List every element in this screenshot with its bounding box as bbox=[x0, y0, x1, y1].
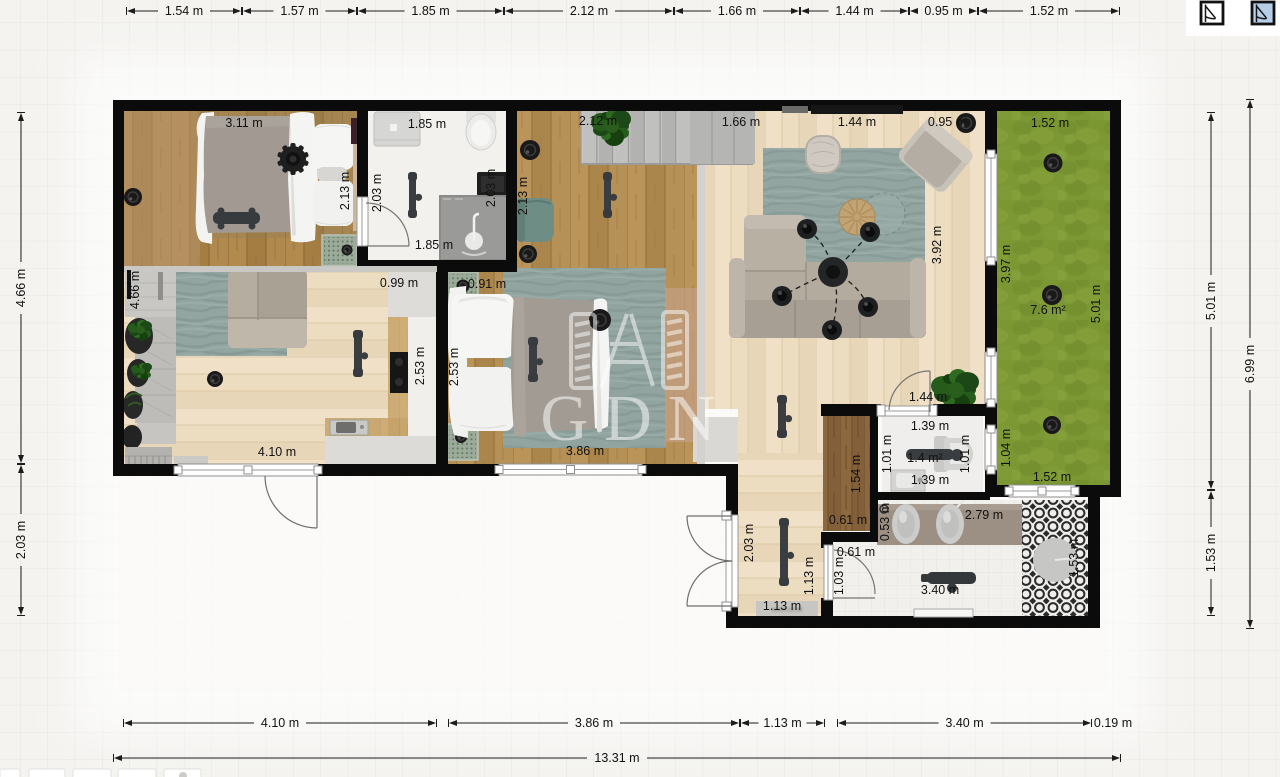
svg-text:3.11 m: 3.11 m bbox=[225, 116, 262, 130]
svg-text:7.6 m²: 7.6 m² bbox=[1030, 303, 1065, 317]
svg-text:0.95 m: 0.95 m bbox=[928, 115, 966, 129]
svg-text:3.92 m: 3.92 m bbox=[930, 226, 944, 264]
svg-text:1.13 m: 1.13 m bbox=[763, 599, 801, 613]
svg-text:1.03 m: 1.03 m bbox=[832, 557, 846, 595]
svg-text:1.04 m: 1.04 m bbox=[999, 429, 1013, 467]
svg-text:2.03 m: 2.03 m bbox=[370, 174, 384, 212]
svg-text:1.85 m: 1.85 m bbox=[415, 238, 453, 252]
svg-text:1.44 m: 1.44 m bbox=[838, 115, 876, 129]
svg-text:2.12 m: 2.12 m bbox=[570, 4, 608, 18]
svg-text:GDN: GDN bbox=[541, 382, 732, 455]
svg-text:1.44 m: 1.44 m bbox=[909, 390, 947, 404]
svg-text:3.40 m: 3.40 m bbox=[921, 583, 959, 597]
svg-text:3.40 m: 3.40 m bbox=[945, 716, 983, 730]
svg-text:1.52 m: 1.52 m bbox=[1033, 470, 1071, 484]
svg-text:3.97 m: 3.97 m bbox=[999, 245, 1013, 283]
svg-text:1.01 m: 1.01 m bbox=[958, 435, 972, 473]
svg-text:1.85 m: 1.85 m bbox=[411, 4, 449, 18]
svg-text:2.79 m: 2.79 m bbox=[965, 508, 1003, 522]
svg-text:2.13 m: 2.13 m bbox=[338, 172, 352, 210]
svg-text:4.10 m: 4.10 m bbox=[261, 716, 299, 730]
svg-text:2.53 m: 2.53 m bbox=[413, 347, 427, 385]
svg-text:2.03 m: 2.03 m bbox=[14, 521, 28, 559]
svg-text:1.39 m: 1.39 m bbox=[911, 473, 949, 487]
svg-text:1.4 m²: 1.4 m² bbox=[907, 451, 942, 465]
svg-text:3.86 m: 3.86 m bbox=[575, 716, 613, 730]
svg-text:0.61 m: 0.61 m bbox=[829, 513, 867, 527]
svg-text:1.53 m: 1.53 m bbox=[1204, 534, 1218, 572]
svg-text:5.01 m: 5.01 m bbox=[1204, 282, 1218, 320]
svg-text:2.53 m: 2.53 m bbox=[447, 348, 461, 386]
svg-text:0.95 m: 0.95 m bbox=[924, 4, 962, 18]
svg-text:1.54 m: 1.54 m bbox=[849, 455, 863, 493]
svg-text:0.19 m: 0.19 m bbox=[1094, 716, 1132, 730]
svg-text:2.03 m: 2.03 m bbox=[742, 524, 756, 562]
svg-text:2.03 m: 2.03 m bbox=[484, 169, 498, 207]
svg-text:1.13 m: 1.13 m bbox=[802, 557, 816, 595]
svg-text:1.66 m: 1.66 m bbox=[718, 4, 756, 18]
svg-text:0.91 m: 0.91 m bbox=[468, 277, 506, 291]
svg-text:1.52 m: 1.52 m bbox=[1030, 4, 1068, 18]
svg-text:2.12 m: 2.12 m bbox=[579, 114, 617, 128]
svg-text:5.01 m: 5.01 m bbox=[1089, 285, 1103, 323]
svg-text:1.54 m: 1.54 m bbox=[165, 4, 203, 18]
svg-text:4.66 m: 4.66 m bbox=[14, 269, 28, 307]
svg-text:6.99 m: 6.99 m bbox=[1243, 345, 1257, 383]
svg-text:1.44 m: 1.44 m bbox=[835, 4, 873, 18]
svg-text:0.99 m: 0.99 m bbox=[380, 276, 418, 290]
svg-text:1.85 m: 1.85 m bbox=[408, 117, 446, 131]
svg-text:1.66 m: 1.66 m bbox=[722, 115, 760, 129]
svg-text:1.39 m: 1.39 m bbox=[911, 419, 949, 433]
svg-text:13.31 m: 13.31 m bbox=[594, 751, 639, 765]
svg-text:1.53 m: 1.53 m bbox=[1067, 539, 1081, 577]
svg-text:1.13 m: 1.13 m bbox=[763, 716, 801, 730]
svg-text:1.52 m: 1.52 m bbox=[1031, 116, 1069, 130]
svg-text:0.53 m: 0.53 m bbox=[878, 503, 892, 541]
svg-text:4.10 m: 4.10 m bbox=[258, 445, 296, 459]
svg-text:1.01 m: 1.01 m bbox=[880, 435, 894, 473]
svg-text:2.13 m: 2.13 m bbox=[516, 177, 530, 215]
svg-text:1.57 m: 1.57 m bbox=[280, 4, 318, 18]
